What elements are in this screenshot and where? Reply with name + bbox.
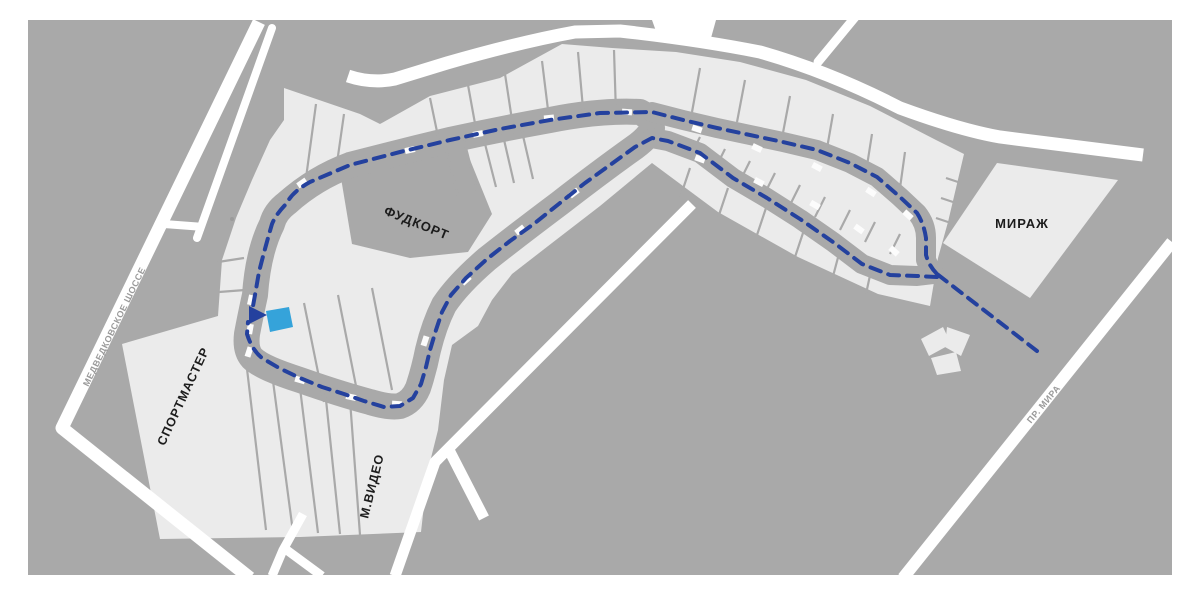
map-dot <box>230 217 234 221</box>
road-left-crossover <box>164 224 204 227</box>
mall-map: МЕДВЕДКОВСКОЕ ШОССЕ ПР. МИРА ФУДКОРТ МИР… <box>0 0 1200 600</box>
label-mirage: МИРАЖ <box>995 216 1049 231</box>
